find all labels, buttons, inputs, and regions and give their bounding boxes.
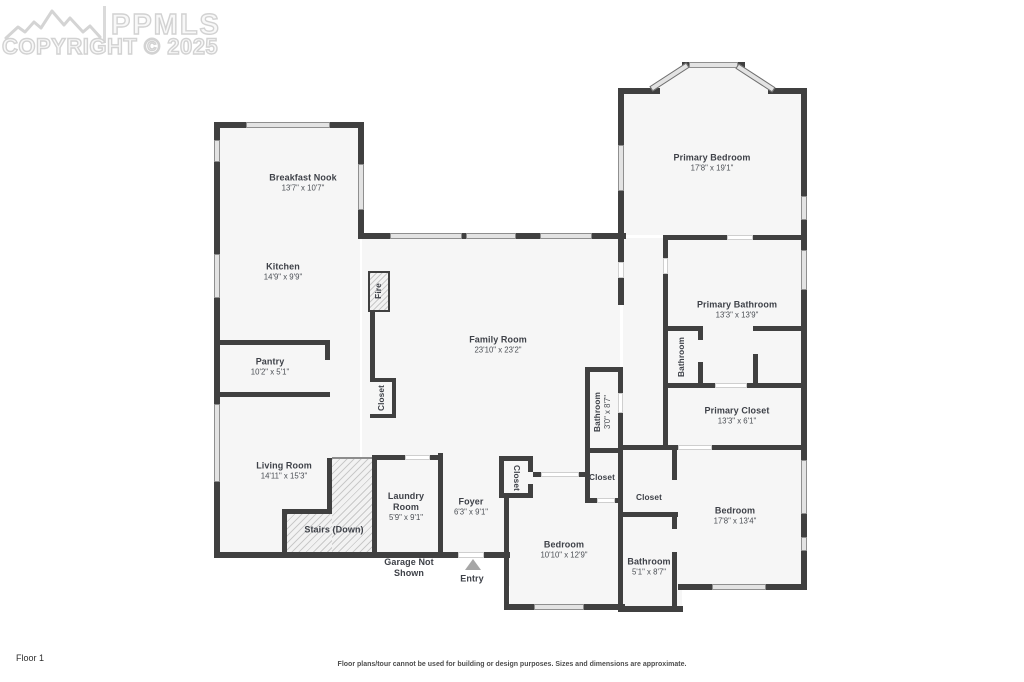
wall-segment — [698, 326, 703, 340]
room-label-pantry: Pantry 10'2" x 5'1" — [251, 356, 289, 377]
wall-segment — [438, 453, 443, 554]
wall-segment — [533, 472, 541, 477]
watermark: PPMLS COPYRIGHT © 2025 — [0, 0, 260, 70]
door-opening — [618, 262, 624, 278]
wall-segment — [618, 278, 624, 305]
window — [801, 250, 807, 290]
room-label-foyer: Foyer 6'3" x 9'1" — [454, 496, 488, 517]
door-opening — [727, 235, 753, 240]
door-opening — [618, 393, 623, 413]
wall-segment — [282, 509, 332, 514]
wall-segment — [372, 455, 405, 460]
room-label-bedroom-right: Bedroom 17'8" x 13'4" — [714, 505, 757, 526]
wall-segment — [712, 445, 807, 450]
wall-segment — [753, 235, 807, 240]
wall-segment — [747, 383, 807, 388]
room-label-primary-closet: Primary Closet 13'3" x 6'1" — [705, 405, 770, 426]
room-label-bedroom-mid: Bedroom 10'10" x 12'9" — [540, 539, 587, 560]
closet-label-bedroom-right: Closet — [636, 493, 662, 503]
garage-note: Garage Not Shown — [376, 557, 442, 579]
wall-segment — [282, 514, 287, 558]
wall-segment — [618, 88, 624, 145]
window — [214, 140, 220, 162]
wall-segment — [504, 493, 509, 610]
room-label-family-room: Family Room 23'10" x 23'2" — [469, 334, 527, 355]
wall-segment — [325, 340, 330, 360]
room-label-primary-bedroom: Primary Bedroom 17'8" x 19'1" — [673, 152, 750, 173]
wall-segment — [372, 458, 377, 554]
fireplace-label: Fire — [374, 283, 384, 299]
room-label-breakfast-nook: Breakfast Nook 13'7" x 10'7" — [269, 172, 336, 193]
wall-segment — [327, 458, 332, 514]
wall-segment — [672, 552, 677, 610]
window — [466, 233, 516, 239]
entry-arrow-icon — [465, 559, 481, 570]
window — [246, 122, 330, 128]
wall-segment — [618, 512, 678, 517]
closet-label-hall: Closet — [589, 473, 615, 483]
wall-segment — [585, 498, 597, 503]
window — [358, 164, 364, 210]
disclaimer: Floor plans/tour cannot be used for buil… — [0, 661, 1024, 668]
wall-segment — [663, 383, 715, 388]
wall-segment — [753, 326, 807, 331]
wall-segment — [370, 414, 396, 418]
wall-segment — [585, 448, 623, 453]
door-opening — [663, 258, 668, 274]
window — [534, 604, 584, 610]
room-label-kitchen: Kitchen 14'9" x 9'9" — [264, 261, 302, 282]
wall-segment — [672, 450, 677, 480]
door-opening — [715, 383, 747, 388]
wall-segment — [528, 484, 533, 495]
wall-segment — [672, 517, 677, 529]
window — [712, 584, 766, 590]
wall-segment — [528, 461, 533, 472]
wall-segment — [370, 310, 375, 380]
window — [801, 196, 807, 220]
floorplan-canvas: PPMLS COPYRIGHT © 2025 Breakfast Nook 13… — [0, 0, 1024, 682]
entry-label: Entry — [460, 574, 484, 585]
closet-label-kitchen: Closet — [377, 385, 387, 411]
wall-segment — [499, 456, 504, 498]
wall-segment — [753, 354, 758, 385]
window — [801, 460, 807, 514]
window — [214, 254, 220, 298]
stairs-edge — [332, 457, 377, 459]
window — [618, 145, 624, 191]
window — [801, 537, 807, 551]
room-label-hall-bathroom: Bathroom 3'0" x 8'7" — [593, 392, 613, 432]
room-label-bathroom-right: Bathroom 5'1" x 8'7" — [627, 556, 670, 577]
window — [689, 62, 738, 68]
closet-label-foyer: Closet — [511, 465, 521, 491]
room-label-stairs: Stairs (Down) — [304, 525, 363, 536]
wall-segment — [392, 378, 396, 418]
door-opening — [597, 498, 615, 503]
window — [540, 233, 592, 239]
wall-segment — [663, 237, 668, 258]
room-label-living-room: Living Room 14'11" x 15'3" — [256, 460, 312, 481]
wall-segment — [618, 606, 683, 612]
stairs-hatch — [332, 459, 377, 553]
wall-segment — [663, 235, 727, 240]
door-opening — [458, 552, 484, 558]
window — [214, 404, 220, 482]
wall-segment — [214, 392, 330, 397]
room-label-laundry: Laundry Room 5'9" x 9'1" — [379, 491, 433, 523]
wall-segment — [663, 326, 703, 331]
wall-segment — [214, 340, 328, 345]
room-label-primary-bathroom: Primary Bathroom 13'3" x 13'9" — [697, 299, 777, 320]
room-label-primary-toilet: Bathroom — [677, 337, 687, 377]
wall-segment — [615, 498, 623, 503]
wall-segment — [430, 455, 438, 460]
wall-segment — [618, 191, 624, 262]
door-opening — [405, 455, 430, 460]
wall-segment — [618, 367, 623, 393]
wall-segment — [623, 445, 678, 450]
wall-segment — [663, 274, 668, 450]
door-opening — [678, 445, 712, 450]
door-opening — [541, 472, 579, 477]
watermark-copyright: COPYRIGHT © 2025 — [2, 34, 218, 60]
window — [390, 233, 462, 239]
